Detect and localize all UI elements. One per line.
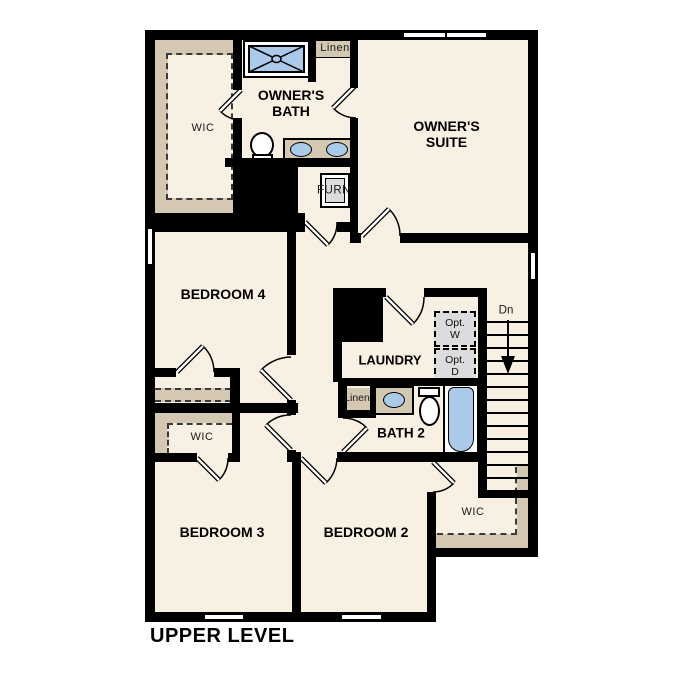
linen-bath-label: Linen <box>344 393 370 405</box>
wall <box>233 38 242 90</box>
wall <box>427 492 436 622</box>
wall <box>287 232 296 355</box>
stairs-down-label: Dn <box>499 305 514 318</box>
bedroom4-label: BEDROOM 4 <box>181 287 266 303</box>
wall <box>478 288 487 498</box>
window-bedroom3 <box>203 613 245 621</box>
wall <box>308 38 316 82</box>
owners-bath-label: OWNER'S BATH <box>245 88 337 119</box>
window-bedroom4 <box>146 227 154 266</box>
window-stair-landing <box>529 251 537 281</box>
owners-wic-label: WIC <box>192 122 215 134</box>
bath2-label: BATH 2 <box>377 425 425 440</box>
bedroom2-wic-label: WIC <box>462 506 485 518</box>
wall <box>350 38 358 88</box>
shower-glass-icon <box>249 46 304 72</box>
wall <box>337 222 353 232</box>
wall <box>528 30 538 557</box>
window-bedroom2 <box>340 613 383 621</box>
window-owners-suite <box>402 31 488 39</box>
bedroom2-label: BEDROOM 2 <box>324 525 409 541</box>
wall <box>353 233 361 243</box>
wall <box>478 490 538 498</box>
furnace-label: FURN <box>317 185 351 198</box>
wall <box>337 452 482 462</box>
bedroom3-wic-label: WIC <box>191 431 214 443</box>
wall <box>145 30 155 622</box>
wall <box>424 288 482 297</box>
wall <box>340 410 376 418</box>
wall-chase <box>335 295 383 342</box>
wall <box>145 368 176 377</box>
wall <box>145 612 436 622</box>
wall <box>370 386 376 412</box>
wall <box>338 378 482 386</box>
wall <box>228 453 240 462</box>
plan-title: UPPER LEVEL <box>150 625 294 648</box>
wall <box>145 453 197 462</box>
wall <box>400 233 538 243</box>
wall <box>427 548 538 557</box>
laundry-label: LAUNDRY <box>358 354 421 369</box>
owners-suite-label: OWNER'S SUITE <box>394 119 499 150</box>
linen-hall-label: Linen <box>320 42 349 54</box>
floor-plan: Opt. W Opt. D <box>0 0 687 687</box>
wall <box>145 403 298 413</box>
bedroom3-label: BEDROOM 3 <box>180 525 265 541</box>
wall <box>145 213 305 232</box>
wall <box>292 452 301 622</box>
plan-linework <box>0 0 687 687</box>
